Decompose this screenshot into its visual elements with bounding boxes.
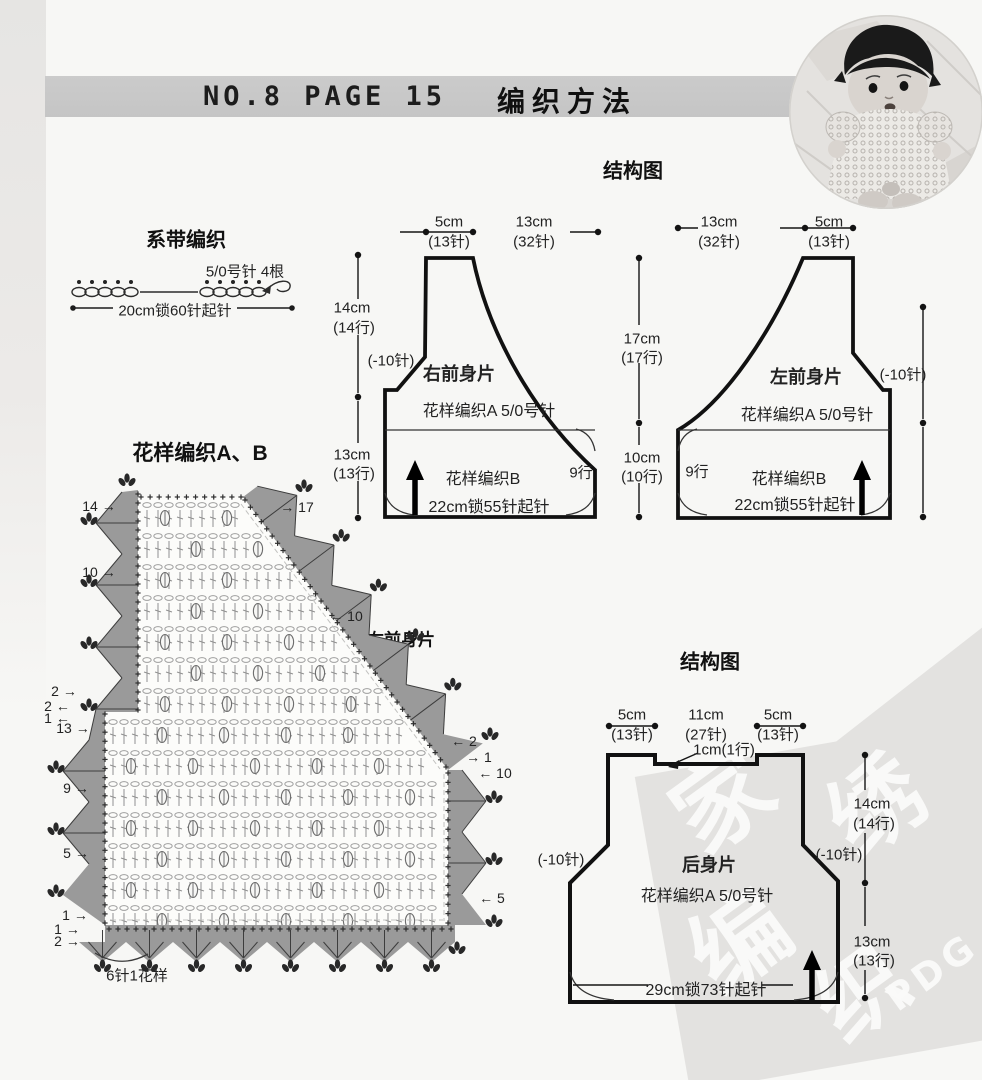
dim-label: 9行 xyxy=(569,462,592,483)
dim-label: (13行) xyxy=(333,463,375,484)
dim-label: (14行) xyxy=(333,317,375,338)
dim-label: 花样编织A 5/0号针 xyxy=(423,397,555,421)
dim-label: (-10针) xyxy=(880,364,927,385)
row-mark: 2 → xyxy=(54,933,80,949)
dim-label: (17行) xyxy=(621,347,663,368)
dim-label: 13cm xyxy=(701,214,738,231)
row-mark: 14 → xyxy=(82,498,115,514)
dim-label: 13cm xyxy=(334,447,371,464)
row-mark: → 1 xyxy=(466,749,492,765)
dim-label: 5cm xyxy=(618,707,646,724)
dim-label: 22cm锁55针起针 xyxy=(429,493,550,517)
row-mark: ← 10 xyxy=(478,765,511,781)
row-mark: ← 10 xyxy=(329,608,362,624)
dim-label: (32针) xyxy=(698,231,740,252)
dim-label: 14cm xyxy=(334,300,371,317)
dim-label: 29cm锁73针起针 xyxy=(646,976,767,1000)
dim-label: 14cm xyxy=(854,796,891,813)
dim-label: (-10针) xyxy=(816,844,863,865)
dim-label: 5cm xyxy=(435,214,463,231)
dim-label: 花样编织B xyxy=(752,465,827,489)
row-mark: ← 5 xyxy=(479,890,505,906)
row-mark: ← 2 xyxy=(451,733,477,749)
piece-name-back: 后身片 xyxy=(682,851,736,877)
row-mark: 10 → xyxy=(82,564,115,580)
dim-label: 花样编织B xyxy=(446,465,521,489)
dim-label: (-10针) xyxy=(368,350,415,371)
dim-label: 9行 xyxy=(685,461,708,482)
dim-label: 17cm xyxy=(624,331,661,348)
dim-label: (10行) xyxy=(621,466,663,487)
dim-label: 13cm xyxy=(854,934,891,951)
dim-label: (13针) xyxy=(757,724,799,745)
dim-label: (32针) xyxy=(513,231,555,252)
scanned-pattern-page: 家 绣 编 织 PDG NO.8 PAGE 15 编织方法 xyxy=(0,0,982,1080)
dim-label: 5cm xyxy=(764,707,792,724)
dim-label: (-10针) xyxy=(538,849,585,870)
piece-name-right-front: 右前身片 xyxy=(423,360,495,386)
row-mark: 9 → xyxy=(63,780,89,796)
row-mark: 2 → xyxy=(51,683,77,699)
dim-label: (13针) xyxy=(808,231,850,252)
dim-label: (13针) xyxy=(428,231,470,252)
dim-label: 花样编织A 5/0号针 xyxy=(641,882,773,906)
row-mark: → 17 xyxy=(280,499,313,515)
dim-label: 10cm xyxy=(624,450,661,467)
dim-label: 22cm锁55针起针 xyxy=(735,491,856,515)
dim-label: 5cm xyxy=(815,214,843,231)
dim-label: 13cm xyxy=(516,214,553,231)
row-mark: 5 → xyxy=(63,845,89,861)
dim-label: 11cm xyxy=(688,707,724,724)
annotation-labels: 5cm(13针)13cm(32针)14cm(14行)(-10针)右前身片花样编织… xyxy=(0,0,982,1080)
row-mark: 13 → xyxy=(56,720,89,736)
piece-name-left-front: 左前身片 xyxy=(770,363,842,389)
dim-label: (13针) xyxy=(611,724,653,745)
dim-label: (13行) xyxy=(853,950,895,971)
dim-label: 1cm(1行) xyxy=(693,739,755,760)
dim-label: (14行) xyxy=(853,813,895,834)
dim-label: 花样编织A 5/0号针 xyxy=(741,401,873,425)
